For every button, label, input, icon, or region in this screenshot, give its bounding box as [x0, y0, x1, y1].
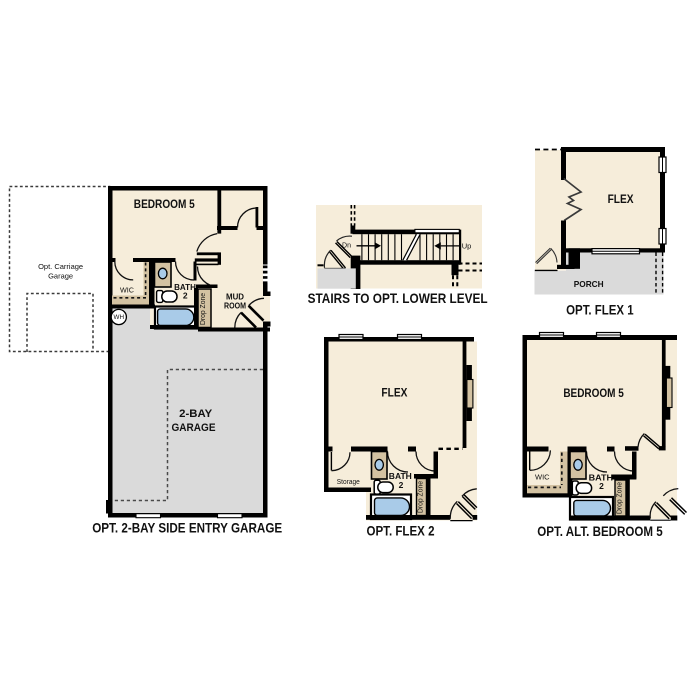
svg-text:OPT. ALT. BEDROOM 5: OPT. ALT. BEDROOM 5: [537, 524, 663, 539]
svg-text:2: 2: [183, 291, 188, 301]
svg-text:OPT. FLEX 1: OPT. FLEX 1: [566, 301, 634, 317]
svg-text:WIC: WIC: [120, 286, 135, 295]
svg-text:Dn: Dn: [342, 242, 351, 249]
svg-text:Drop Zone: Drop Zone: [417, 481, 424, 513]
svg-text:ROOM: ROOM: [224, 301, 246, 311]
svg-text:PORCH: PORCH: [574, 279, 604, 289]
svg-text:Garage: Garage: [48, 272, 73, 281]
svg-text:2-BAY: 2-BAY: [179, 408, 213, 420]
svg-text:GARAGE: GARAGE: [172, 422, 216, 434]
svg-text:BEDROOM 5: BEDROOM 5: [134, 197, 195, 211]
svg-text:FLEX: FLEX: [381, 386, 407, 400]
svg-text:FLEX: FLEX: [608, 192, 634, 206]
svg-text:Opt. Carriage: Opt. Carriage: [38, 262, 83, 271]
svg-text:OPT. FLEX 2: OPT. FLEX 2: [367, 523, 435, 538]
svg-text:WIC: WIC: [535, 474, 550, 481]
svg-text:BEDROOM 5: BEDROOM 5: [563, 386, 624, 400]
svg-text:WH: WH: [114, 314, 125, 321]
svg-text:Storage: Storage: [337, 479, 360, 486]
svg-text:2: 2: [599, 481, 604, 491]
svg-text:Drop Zone: Drop Zone: [200, 293, 207, 325]
svg-text:Up: Up: [462, 241, 472, 250]
svg-text:Drop Zone: Drop Zone: [617, 482, 624, 514]
svg-text:2: 2: [399, 480, 404, 490]
svg-text:OPT. 2-BAY SIDE ENTRY GARAGE: OPT. 2-BAY SIDE ENTRY GARAGE: [92, 520, 282, 536]
svg-text:STAIRS TO OPT. LOWER LEVEL: STAIRS TO OPT. LOWER LEVEL: [308, 290, 488, 306]
